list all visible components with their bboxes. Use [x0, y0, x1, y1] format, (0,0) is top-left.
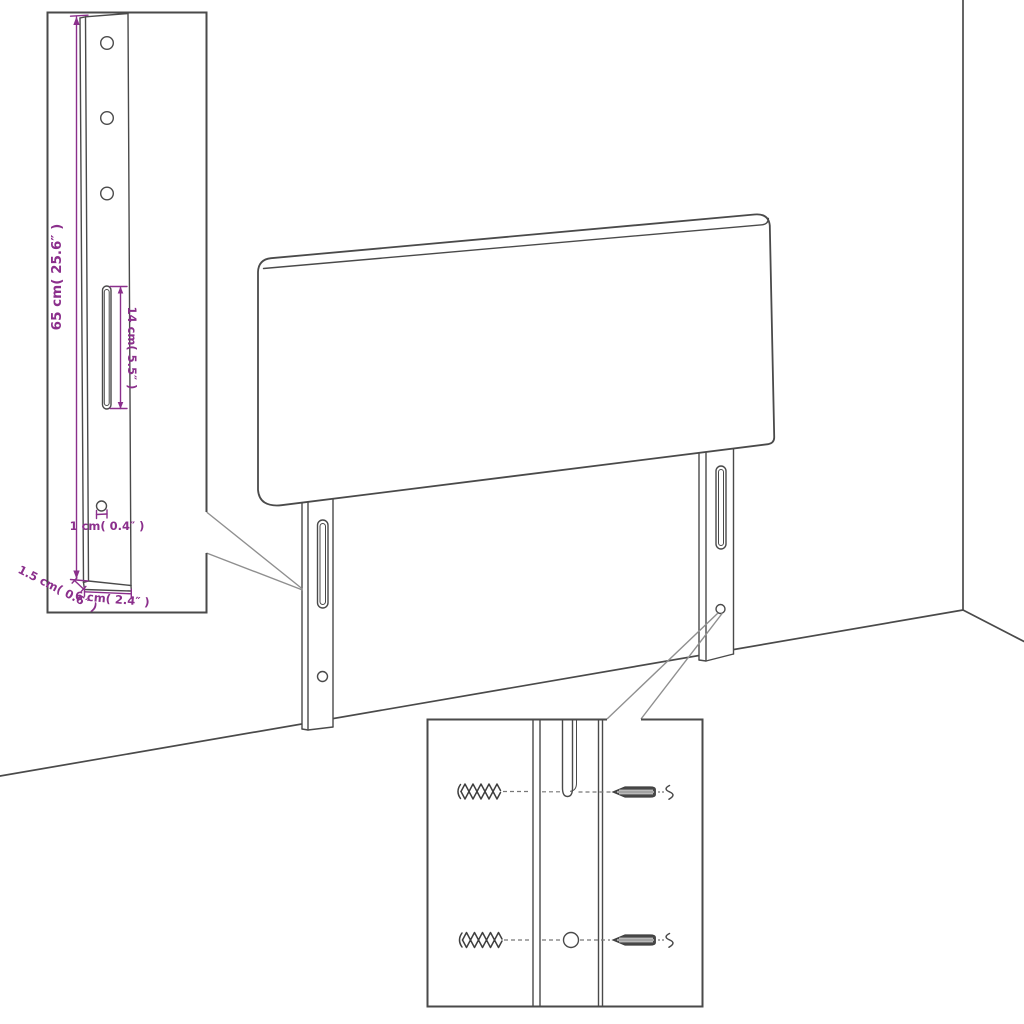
illustration-canvas: 65 cm( 25.6″ ) 14 cm( 5.5″ ) 1 cm( 0.4″ … [0, 0, 1024, 1024]
mounting-detail-leader-right [641, 613, 723, 719]
dimension-slot-length-label: 14 cm( 5.5″ ) [125, 307, 139, 390]
dimension-height-label: 65 cm( 25.6″ ) [49, 224, 65, 331]
leg-detail-leader-bottom [207, 553, 303, 590]
left-leg [302, 490, 333, 730]
leg-detail-leader-top [207, 512, 303, 589]
headboard-technical-drawing: 65 cm( 25.6″ ) 14 cm( 5.5″ ) 1 cm( 0.4″ … [0, 0, 1024, 1024]
dimension-hole-diameter-label: 1 cm( 0.4″ ) [70, 519, 145, 533]
mounting-detail-leader-left [607, 613, 718, 719]
floor-line-right [963, 610, 1024, 642]
leg-detail-inset: 65 cm( 25.6″ ) 14 cm( 5.5″ ) 1 cm( 0.4″ … [16, 13, 207, 615]
mounting-detail-box [428, 720, 703, 1007]
leader-lines [207, 512, 723, 719]
mounting-detail-inset [428, 720, 703, 1007]
headboard-panel [258, 214, 774, 505]
right-leg [699, 440, 734, 661]
